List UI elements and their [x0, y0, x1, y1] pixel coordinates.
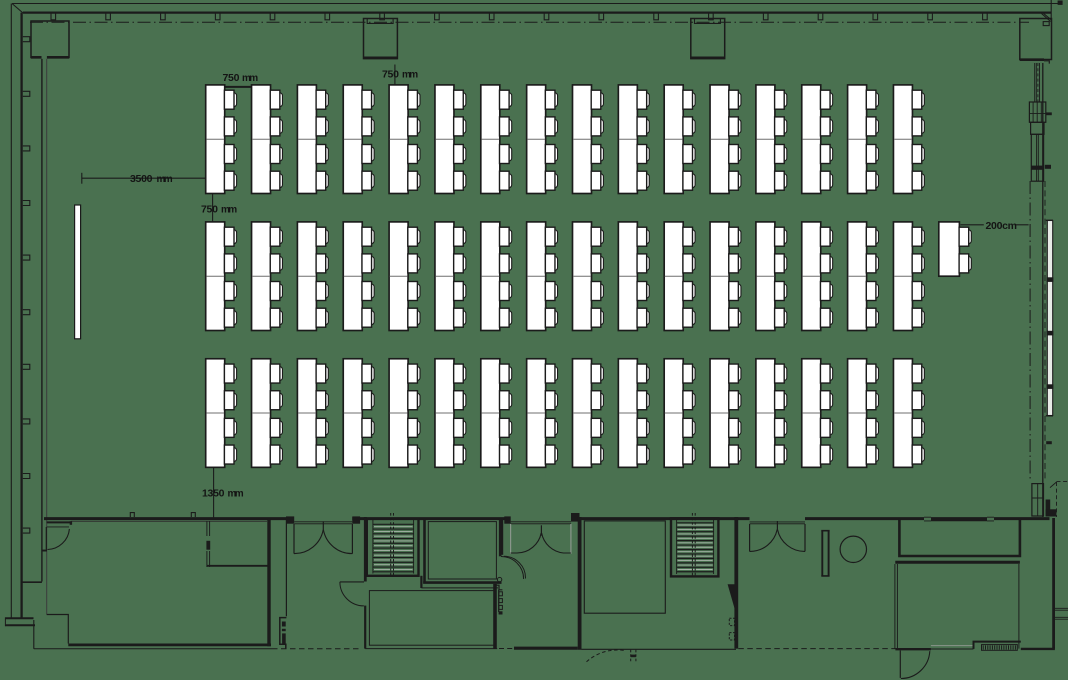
- svg-text:mm: mm: [228, 489, 244, 500]
- svg-text:mm: mm: [157, 174, 173, 185]
- svg-text:3500: 3500: [130, 173, 153, 185]
- svg-text:mm: mm: [221, 205, 237, 216]
- svg-text:750: 750: [223, 72, 240, 84]
- svg-text:mm: mm: [242, 73, 258, 84]
- svg-text:200cm: 200cm: [986, 220, 1017, 232]
- svg-text:750: 750: [382, 69, 399, 81]
- svg-text:750: 750: [201, 204, 218, 216]
- svg-text:mm: mm: [402, 70, 418, 81]
- svg-text:1350: 1350: [202, 488, 225, 500]
